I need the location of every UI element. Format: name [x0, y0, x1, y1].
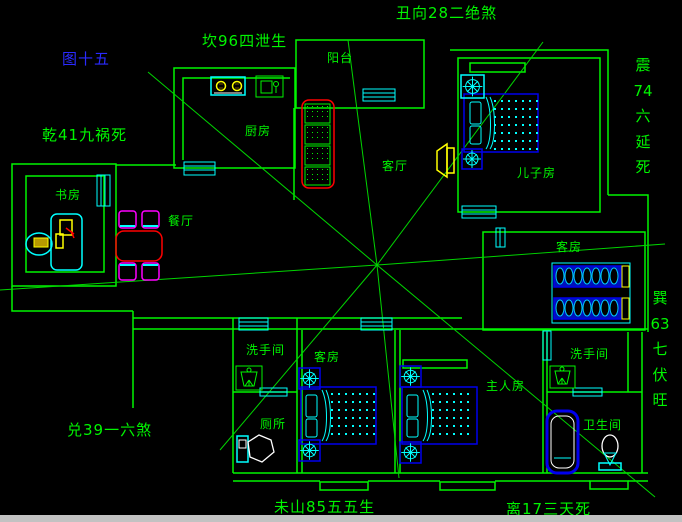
kitchen-sink	[256, 76, 283, 97]
floorplan-canvas[interactable]: 图十五 坎96四泄生 丑向28二绝煞 乾41九祸死 兑39一六煞 未山85五五生…	[0, 0, 682, 522]
sink-west	[236, 366, 262, 390]
room-label-toilet-west: 厕所	[260, 417, 286, 431]
window-bottom-edge	[0, 515, 682, 522]
room-label-sons-room: 儿子房	[517, 166, 556, 180]
room-label-kitchen: 厨房	[245, 124, 271, 138]
annotation-wei-label: 未山85五五生	[274, 498, 375, 516]
room-label-washroom-west: 洗手间	[246, 343, 285, 357]
bathroom-east-door-hatch	[573, 388, 602, 396]
annotation-chou-label: 丑向28二绝煞	[396, 4, 497, 22]
sofa	[302, 100, 334, 188]
study-desk	[26, 214, 82, 270]
room-label-guest-east: 客房	[556, 240, 582, 254]
windows	[97, 89, 602, 396]
guestroom-east-window	[496, 228, 505, 247]
room-label-guest-south: 客房	[314, 350, 340, 364]
room-label-balcony: 阳台	[327, 51, 353, 65]
annotation-kan-label: 坎96四泄生	[202, 32, 287, 50]
twin-beds-guest-east	[552, 263, 630, 323]
room-label-master: 主人房	[486, 379, 525, 393]
annotation-xun-column: 巽 63 七 伏 旺	[648, 288, 672, 416]
toilet-west-door-hatch	[260, 388, 287, 396]
annotation-zhen-column: 震 74 六 延 死	[631, 55, 655, 183]
sink-east	[550, 366, 575, 388]
guestroom-south-window	[361, 318, 392, 330]
washroom-east-window	[543, 331, 551, 360]
room-label-study: 书房	[55, 188, 81, 202]
tv	[437, 144, 454, 177]
annotation-dui-label: 兑39一六煞	[67, 421, 152, 439]
bed-guest-south	[301, 387, 376, 444]
room-label-bathroom-east: 卫生间	[583, 418, 622, 432]
bed-master	[402, 387, 477, 444]
dining-table	[116, 211, 162, 280]
figure-number-label: 图十五	[62, 50, 110, 68]
stove	[211, 77, 245, 95]
room-label-dining-room: 餐厅	[168, 214, 194, 228]
washroom-west-window	[239, 318, 268, 330]
floorplan-drawing	[0, 0, 682, 522]
annotation-qian-label: 乾41九祸死	[42, 126, 127, 144]
bed-sons-room	[464, 94, 538, 152]
room-label-living-room: 客厅	[382, 159, 408, 173]
toilet-west	[237, 435, 274, 462]
balcony-window	[363, 89, 395, 101]
room-label-washroom-east: 洗手间	[570, 347, 609, 361]
computer	[34, 220, 72, 248]
